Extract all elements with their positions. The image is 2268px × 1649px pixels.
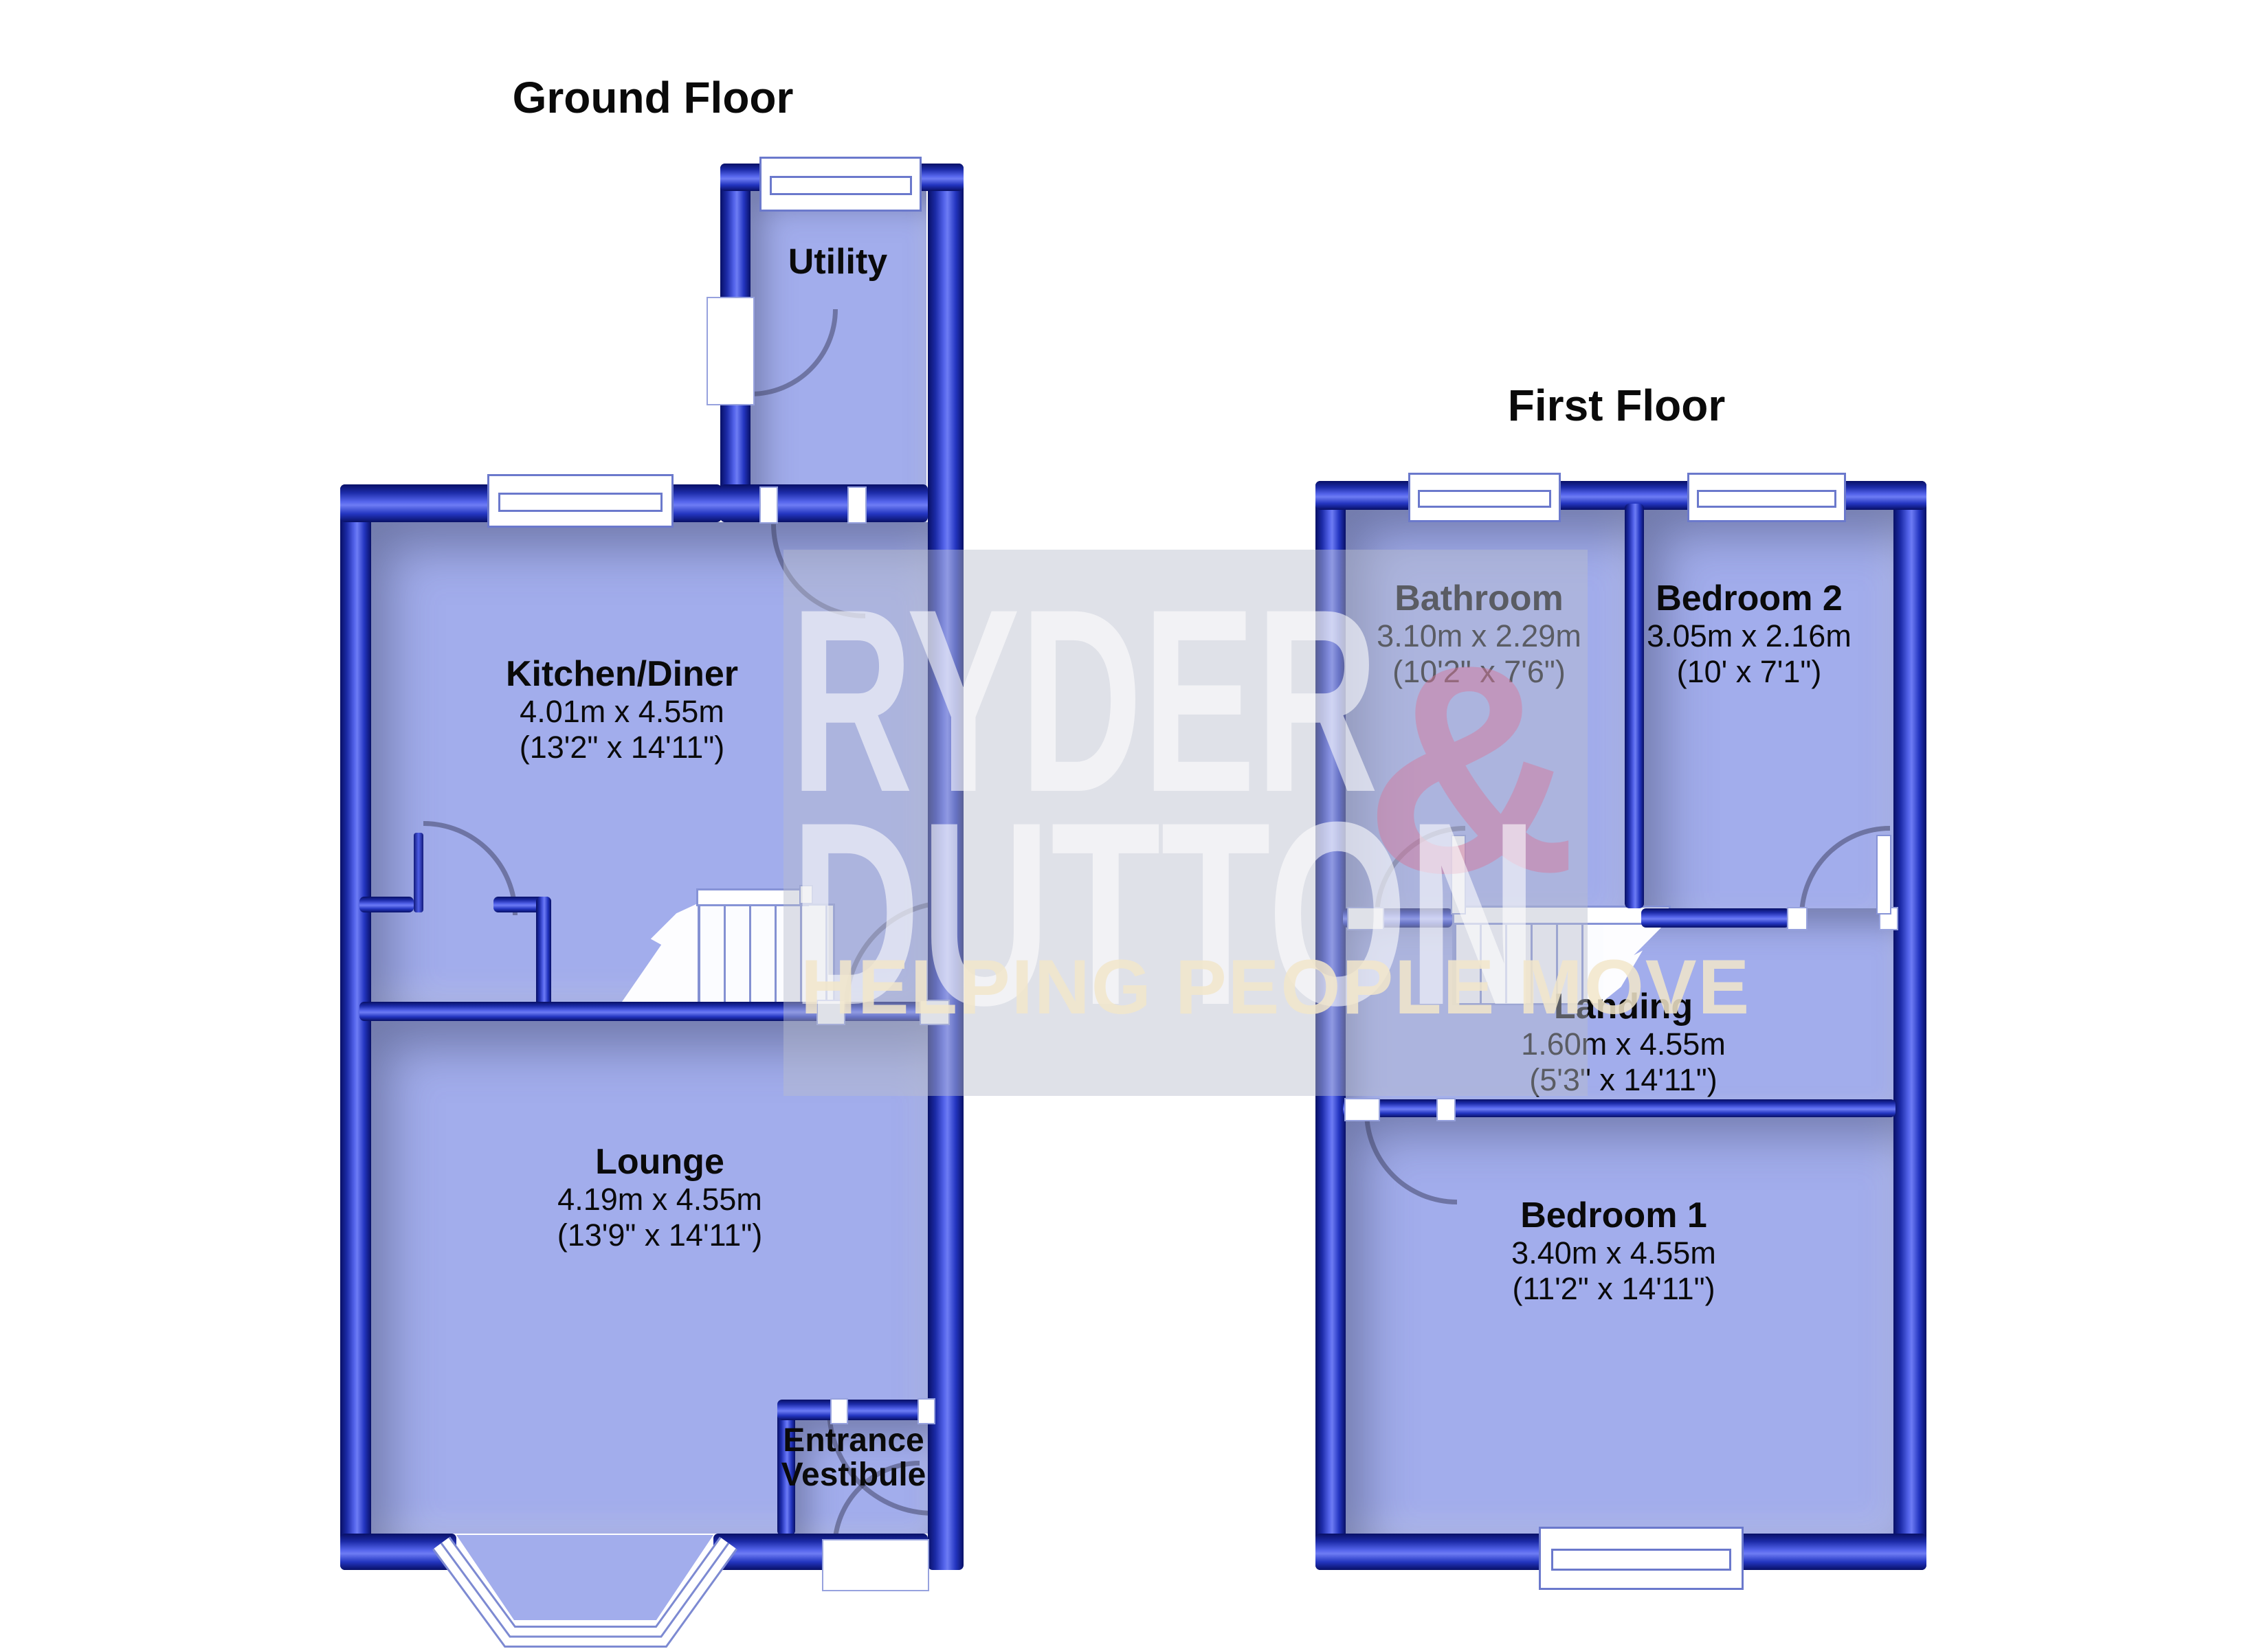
room-size-metric: 3.40m x 4.55m [1463, 1235, 1765, 1271]
room-label-lounge: Lounge 4.19m x 4.55m (13'9" x 14'11") [509, 1142, 811, 1254]
floorplan-page: { "document_type": "floorplan", "colors"… [0, 0, 2268, 1649]
wall [1343, 1099, 1895, 1117]
room-label-utility: Utility [700, 242, 975, 282]
door-opening [1787, 907, 1808, 930]
room-name: Lounge [509, 1142, 811, 1182]
room-name: Entrance Vestibule [751, 1424, 957, 1493]
room-size-imperial: (13'9" x 14'11") [509, 1218, 811, 1253]
room-name: Kitchen/Diner [471, 654, 773, 694]
window [1687, 473, 1846, 522]
door-leaf [1876, 835, 1891, 915]
room-name: Bedroom 2 [1598, 579, 1900, 618]
room-size-imperial: (10' x 7'1") [1598, 654, 1900, 690]
door-leaf [414, 833, 423, 912]
utility-door [707, 297, 755, 405]
wall [340, 484, 371, 1570]
room-size-metric: 3.05m x 2.16m [1598, 618, 1900, 654]
door-opening [759, 486, 778, 524]
room-name: Utility [700, 242, 975, 282]
room-size-metric: 4.01m x 4.55m [471, 694, 773, 730]
room-size-imperial: (11'2" x 14'11") [1463, 1271, 1765, 1307]
door-opening [1344, 1098, 1380, 1121]
watermark-tagline: HELPING PEOPLE MOVE [801, 943, 1750, 1031]
wall [777, 1400, 928, 1420]
bay-window [399, 1525, 770, 1649]
room-label-kitchen-diner: Kitchen/Diner 4.01m x 4.55m (13'2" x 14'… [471, 654, 773, 766]
door-opening [918, 1398, 935, 1424]
room-label-bedroom2: Bedroom 2 3.05m x 2.16m (10' x 7'1") [1598, 579, 1900, 691]
wall [359, 897, 414, 912]
window [1408, 473, 1561, 522]
wall [1625, 504, 1644, 908]
door-opening [830, 1398, 848, 1424]
ground-floor-title: Ground Floor [447, 72, 859, 123]
window [759, 157, 922, 212]
room-size-metric: 4.19m x 4.55m [509, 1182, 811, 1218]
room-label-bedroom1: Bedroom 1 3.40m x 4.55m (11'2" x 14'11") [1463, 1196, 1765, 1308]
room-size-imperial: (13'2" x 14'11") [471, 730, 773, 765]
room-name: Bedroom 1 [1463, 1196, 1765, 1235]
room-label-entrance-vestibule: Entrance Vestibule [751, 1424, 957, 1493]
front-door [822, 1539, 929, 1591]
window [487, 474, 674, 528]
door-opening [1436, 1098, 1456, 1121]
window [1539, 1527, 1744, 1590]
first-floor-title: First Floor [1410, 380, 1823, 431]
wall [720, 484, 928, 522]
wall [536, 897, 551, 1007]
wall [1641, 908, 1790, 928]
door-opening [847, 486, 867, 524]
